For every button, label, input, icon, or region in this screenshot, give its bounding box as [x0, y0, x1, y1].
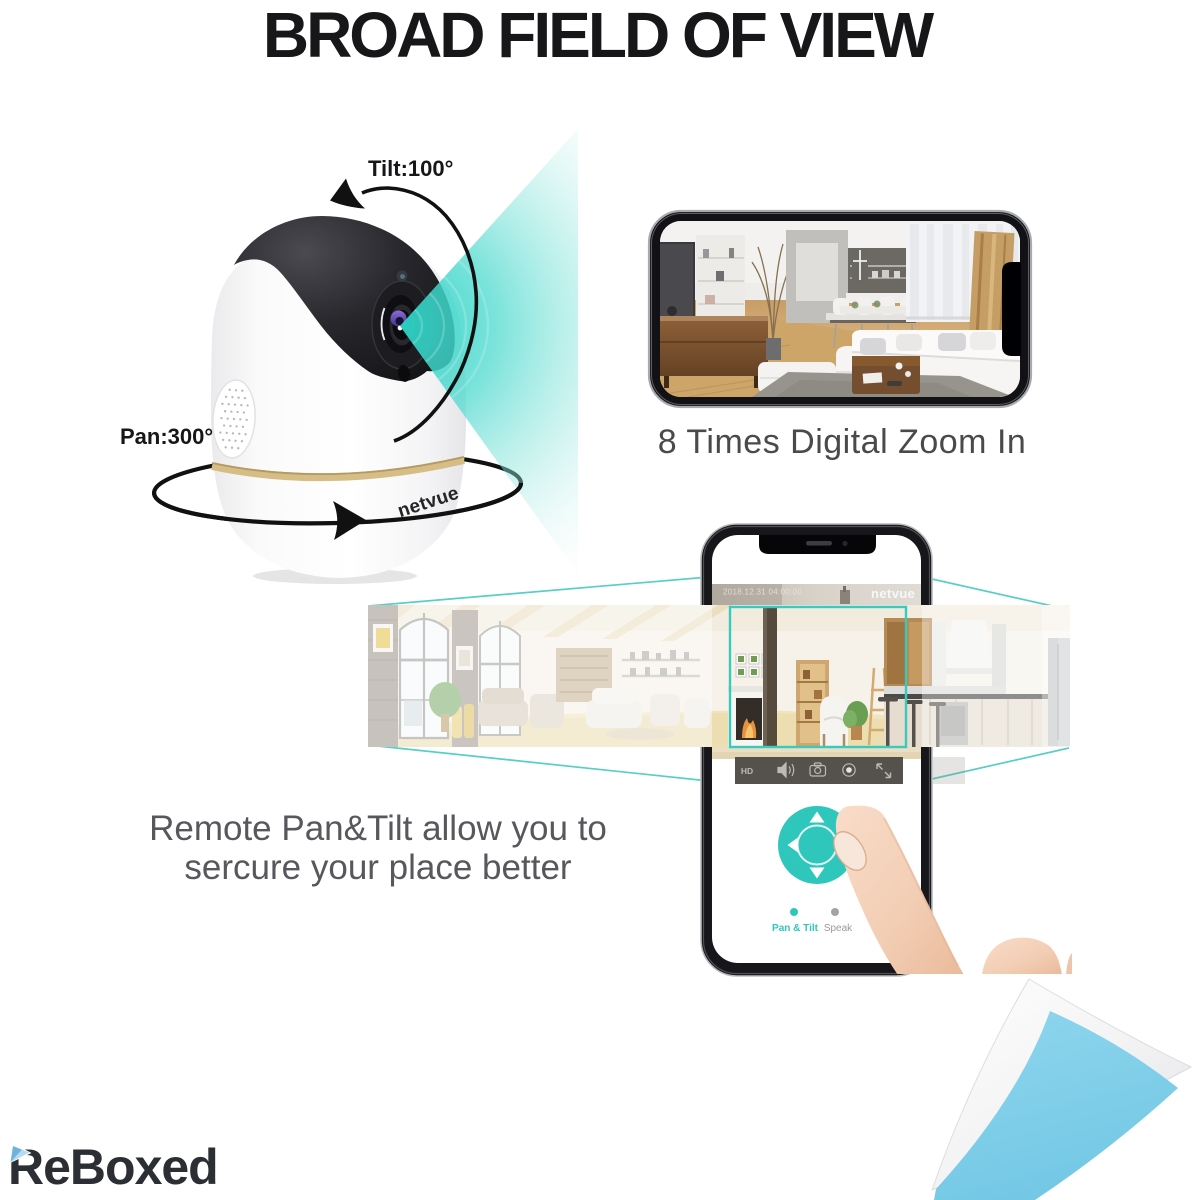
svg-text:Speak: Speak — [824, 923, 853, 934]
svg-text:HD: HD — [741, 766, 753, 776]
svg-text:BROAD FIELD OF VIEW: BROAD FIELD OF VIEW — [263, 0, 935, 71]
svg-text:8 Times Digital Zoom In: 8 Times Digital Zoom In — [658, 423, 1027, 461]
svg-text:Pan:300°: Pan:300° — [120, 424, 213, 449]
svg-text:ReBoxed: ReBoxed — [8, 1139, 218, 1195]
svg-text:Remote Pan&Tilt allow you to: Remote Pan&Tilt allow you to — [149, 809, 607, 848]
svg-text:2018.12.31 04:00:00: 2018.12.31 04:00:00 — [723, 588, 802, 597]
svg-text:Tilt:100°: Tilt:100° — [368, 156, 453, 181]
svg-text:Pan & Tilt: Pan & Tilt — [772, 923, 819, 934]
svg-text:netvue: netvue — [871, 586, 915, 601]
svg-text:sercure your place better: sercure your place better — [184, 848, 571, 887]
